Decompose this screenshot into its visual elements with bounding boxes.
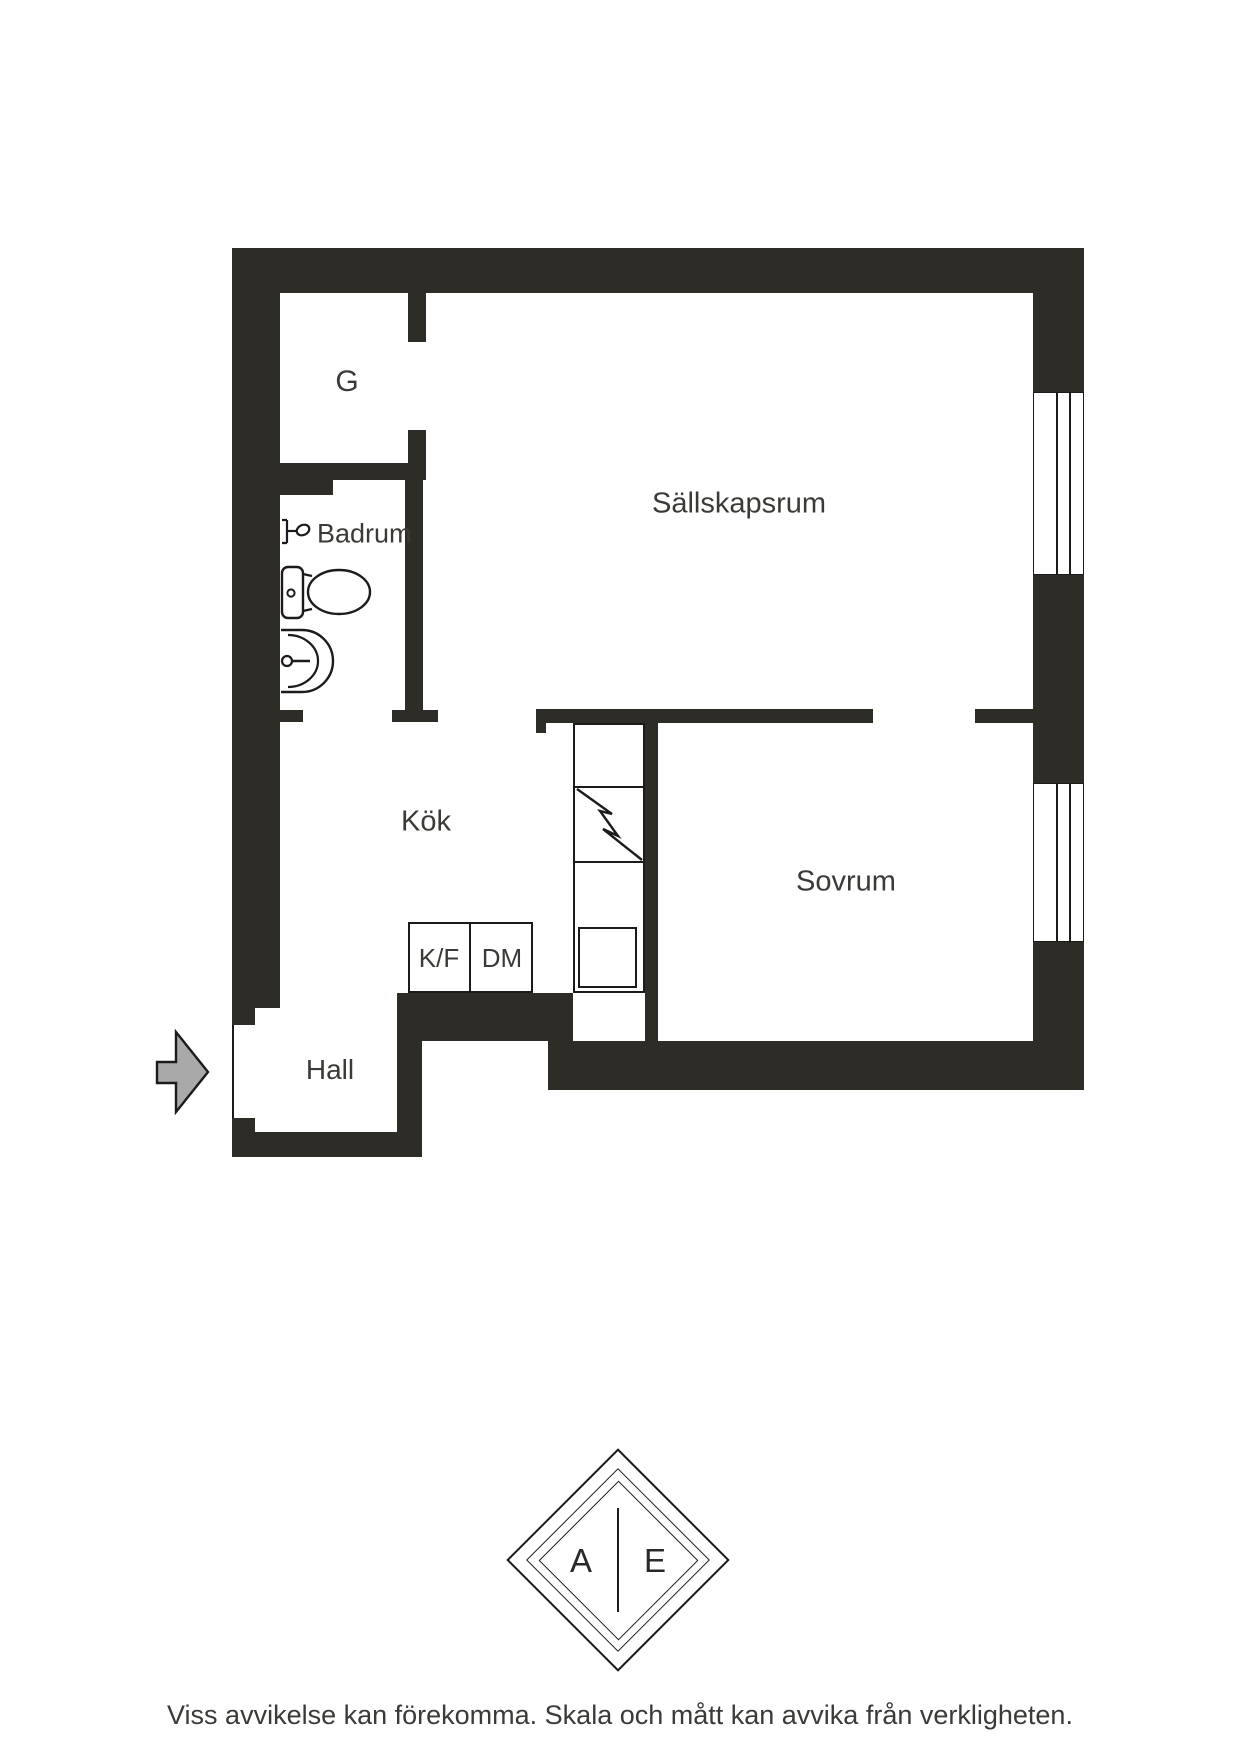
window-pane-line xyxy=(1069,393,1071,574)
room-label-hall: Hall xyxy=(306,1056,354,1084)
room-label-kok: Kök xyxy=(401,808,451,837)
wall-top xyxy=(232,248,1084,293)
wall-hall-door-stub xyxy=(232,1118,255,1132)
kitchen-sink-box xyxy=(578,927,637,988)
wall-bathroom-duct xyxy=(280,480,333,495)
wall-kitchen-bedroom-divider xyxy=(645,709,658,1041)
window-pane-line xyxy=(1056,393,1058,574)
wall-livingroom-divider xyxy=(536,709,873,723)
window-pane-line xyxy=(1069,784,1071,941)
appliance-label-kf: K/F xyxy=(419,945,459,971)
wall-bedroom-door-stub xyxy=(975,709,1033,723)
wall-closet-stub-bottom xyxy=(408,430,426,463)
wall-kitchen-bottom xyxy=(397,993,573,1041)
wall-hall-bottom xyxy=(232,1132,422,1157)
window-pane-line xyxy=(1056,784,1058,941)
toilet-icon xyxy=(276,560,376,622)
wall-closet-stub-top xyxy=(408,293,426,342)
wall-left-lower xyxy=(232,1008,255,1025)
logo-letter-a: A xyxy=(558,1539,604,1583)
window-livingroom xyxy=(1033,392,1084,575)
logo-divider-line xyxy=(617,1508,619,1612)
wall-bedroom-bottom xyxy=(548,1041,1084,1090)
stove-lightning-icon xyxy=(573,786,645,863)
window-bedroom xyxy=(1033,783,1084,942)
logo-letter-e: E xyxy=(632,1539,678,1583)
entrance-door-frame-line xyxy=(232,1025,234,1118)
sink-icon xyxy=(276,624,338,698)
room-label-badrum: Badrum xyxy=(317,521,412,548)
wall-right-mid xyxy=(1033,575,1084,783)
entrance-arrow-icon xyxy=(150,1026,214,1118)
room-label-g: G xyxy=(335,367,358,397)
footer-disclaimer: Viss avvikelse kan förekomma. Skala och … xyxy=(0,1700,1240,1731)
wall-bathroom-right xyxy=(405,480,423,710)
wall-right-upper xyxy=(1033,293,1084,392)
wall-bathroom-door-cap xyxy=(392,710,438,722)
shower-icon xyxy=(276,512,314,550)
wall-bathroom-door-stub xyxy=(280,710,303,722)
wall-below-closet xyxy=(280,463,426,480)
wall-divider-cap xyxy=(536,723,546,733)
room-label-sallskapsrum: Sällskapsrum xyxy=(652,490,826,519)
wall-left xyxy=(232,293,280,1008)
appliance-label-dm: DM xyxy=(482,945,522,971)
room-label-sovrum: Sovrum xyxy=(796,868,896,897)
floorplan-page: K/F DM G Badrum Sällskapsrum Kök Sovrum … xyxy=(0,0,1240,1754)
appliance-divider xyxy=(469,922,471,993)
